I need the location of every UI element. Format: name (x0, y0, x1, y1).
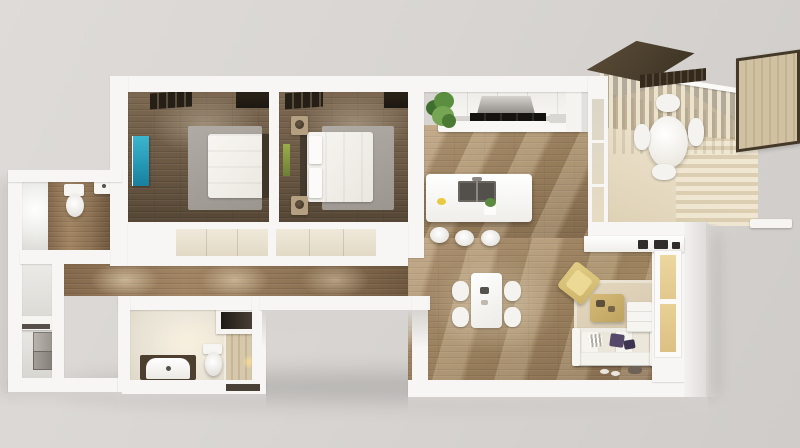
bedroom1-window-blinds-left (150, 91, 192, 110)
wall-wc-bottom (20, 250, 110, 264)
plant-leaf-4 (442, 114, 456, 128)
hallway-floor (64, 264, 408, 296)
wc-sink-faucet (102, 184, 106, 188)
wc-floor-white (20, 182, 48, 250)
tall-cabinet-fridge (566, 92, 588, 132)
wall-notch-cap (260, 296, 430, 310)
ottoman-decor-2 (608, 306, 615, 312)
bedroom2-headboard (300, 132, 307, 202)
teal-wall-art (132, 136, 149, 186)
wall-bedroom2-kitchen (408, 92, 424, 258)
floor-dark-object (628, 366, 642, 374)
lemon-bowl (437, 198, 446, 205)
bedroom2-pillow-top (309, 136, 322, 164)
bathroom-outer-face (114, 394, 266, 414)
dining-table-decor-2 (481, 300, 488, 305)
living-window-pane-upper (660, 255, 676, 299)
left-outer-face (8, 392, 122, 408)
bar-stool-1 (430, 227, 449, 243)
ottoman-decor-1 (596, 300, 605, 307)
bedroom2-pillow-bottom (309, 168, 322, 198)
nightstand-bottom-lamp (295, 200, 304, 209)
privacy-screen (736, 50, 800, 153)
extractor-hood (477, 96, 535, 114)
bathroom-niche (221, 312, 253, 329)
slipper-1 (600, 369, 609, 374)
dining-chair-2 (452, 307, 469, 327)
balcony-chair-right (688, 118, 704, 146)
media-device-3 (672, 242, 680, 249)
living-outer-face (408, 397, 708, 419)
island-faucet (472, 177, 482, 181)
wall-right-outer-face (684, 222, 708, 397)
closet-shelf-slot (22, 324, 50, 329)
sofa-striped-cushion (588, 333, 602, 347)
bedroom1-window-blinds-right (236, 92, 269, 108)
washer-dryer-lower (33, 351, 54, 370)
nightstand-top-lamp (295, 120, 304, 129)
right-outer-fade (706, 224, 720, 397)
balcony-table (648, 116, 688, 168)
dining-chair-3 (504, 281, 521, 301)
wall-top-main (112, 76, 606, 92)
living-side-cabinet (627, 302, 652, 332)
media-device-1 (638, 240, 648, 249)
wall-closet-divider (52, 264, 64, 392)
balcony-glass-wall (592, 96, 604, 228)
sofa-purple-cushion (609, 333, 625, 348)
bedroom2-closet-front (276, 229, 376, 256)
balcony-chair-left (634, 124, 650, 150)
balcony-chair-top (656, 94, 680, 112)
bar-stool-3 (481, 230, 500, 246)
wall-bedroom-divider (269, 92, 279, 224)
balcony-ledge (750, 219, 792, 228)
potted-plant (424, 92, 460, 136)
bedroom1-bed (208, 134, 264, 198)
dining-chair-1 (452, 281, 469, 301)
slipper-2 (611, 371, 620, 376)
sofa-back (576, 353, 656, 365)
wall-left-bottom (8, 378, 122, 392)
notch-outer-face (262, 310, 428, 348)
dining-chair-4 (504, 307, 521, 327)
dining-table-decor (480, 287, 489, 294)
media-device-2 (654, 240, 668, 249)
sofa-dark-cushion (623, 339, 635, 350)
bathroom-toilet-bowl (205, 352, 222, 376)
sofa-arm-left (572, 328, 580, 366)
washer-dryer-upper (33, 332, 54, 352)
green-wall-art (283, 144, 290, 176)
wall-wc-top (8, 170, 122, 182)
wall-living-bottom (408, 380, 708, 397)
balcony-chair-bottom (652, 164, 676, 180)
bathroom-dark-mat (226, 384, 260, 391)
bedroom2-window-blinds-right (384, 92, 408, 108)
wall-left-outer (8, 170, 22, 392)
wc-toilet-bowl (66, 194, 84, 217)
island-herb-leaves (485, 198, 496, 207)
gold-ottoman (590, 294, 624, 322)
floorplan-canvas (0, 0, 800, 448)
wall-bathroom-top (118, 296, 265, 310)
living-window-pane-lower (660, 304, 676, 352)
bar-stool-2 (455, 230, 474, 246)
vanity-faucet (166, 366, 171, 371)
bedroom1-closet-front (176, 229, 268, 256)
bedroom2-window-blinds-left (285, 91, 323, 110)
island-sink-divider (476, 181, 478, 202)
closet-floor-upper (20, 264, 52, 316)
